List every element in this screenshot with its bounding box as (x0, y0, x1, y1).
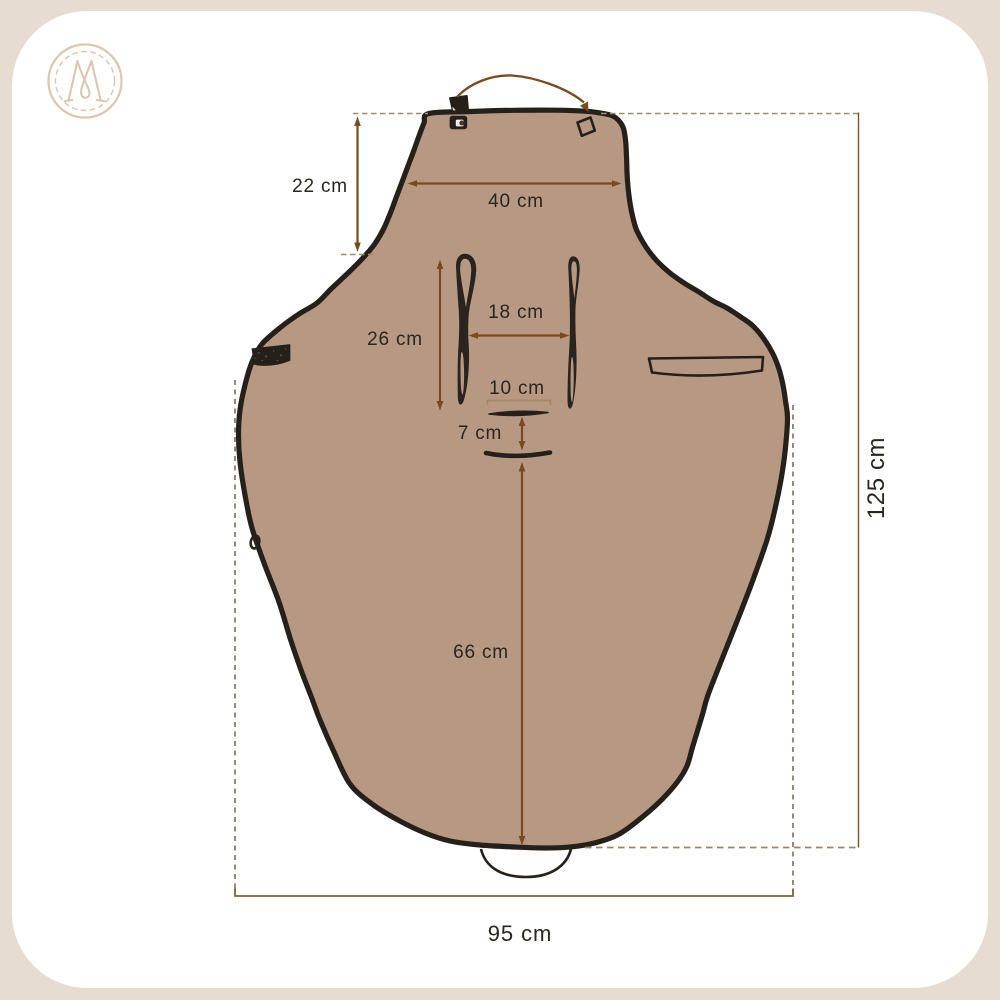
svg-text:26 cm: 26 cm (367, 329, 423, 350)
svg-text:40 cm: 40 cm (488, 191, 544, 212)
svg-text:10 cm: 10 cm (489, 378, 545, 399)
svg-text:7 cm: 7 cm (458, 423, 502, 444)
svg-text:22 cm: 22 cm (292, 176, 348, 197)
svg-text:66 cm: 66 cm (453, 642, 509, 663)
svg-text:125 cm: 125 cm (863, 437, 890, 519)
svg-text:95 cm: 95 cm (488, 921, 552, 946)
svg-text:18 cm: 18 cm (488, 302, 544, 323)
